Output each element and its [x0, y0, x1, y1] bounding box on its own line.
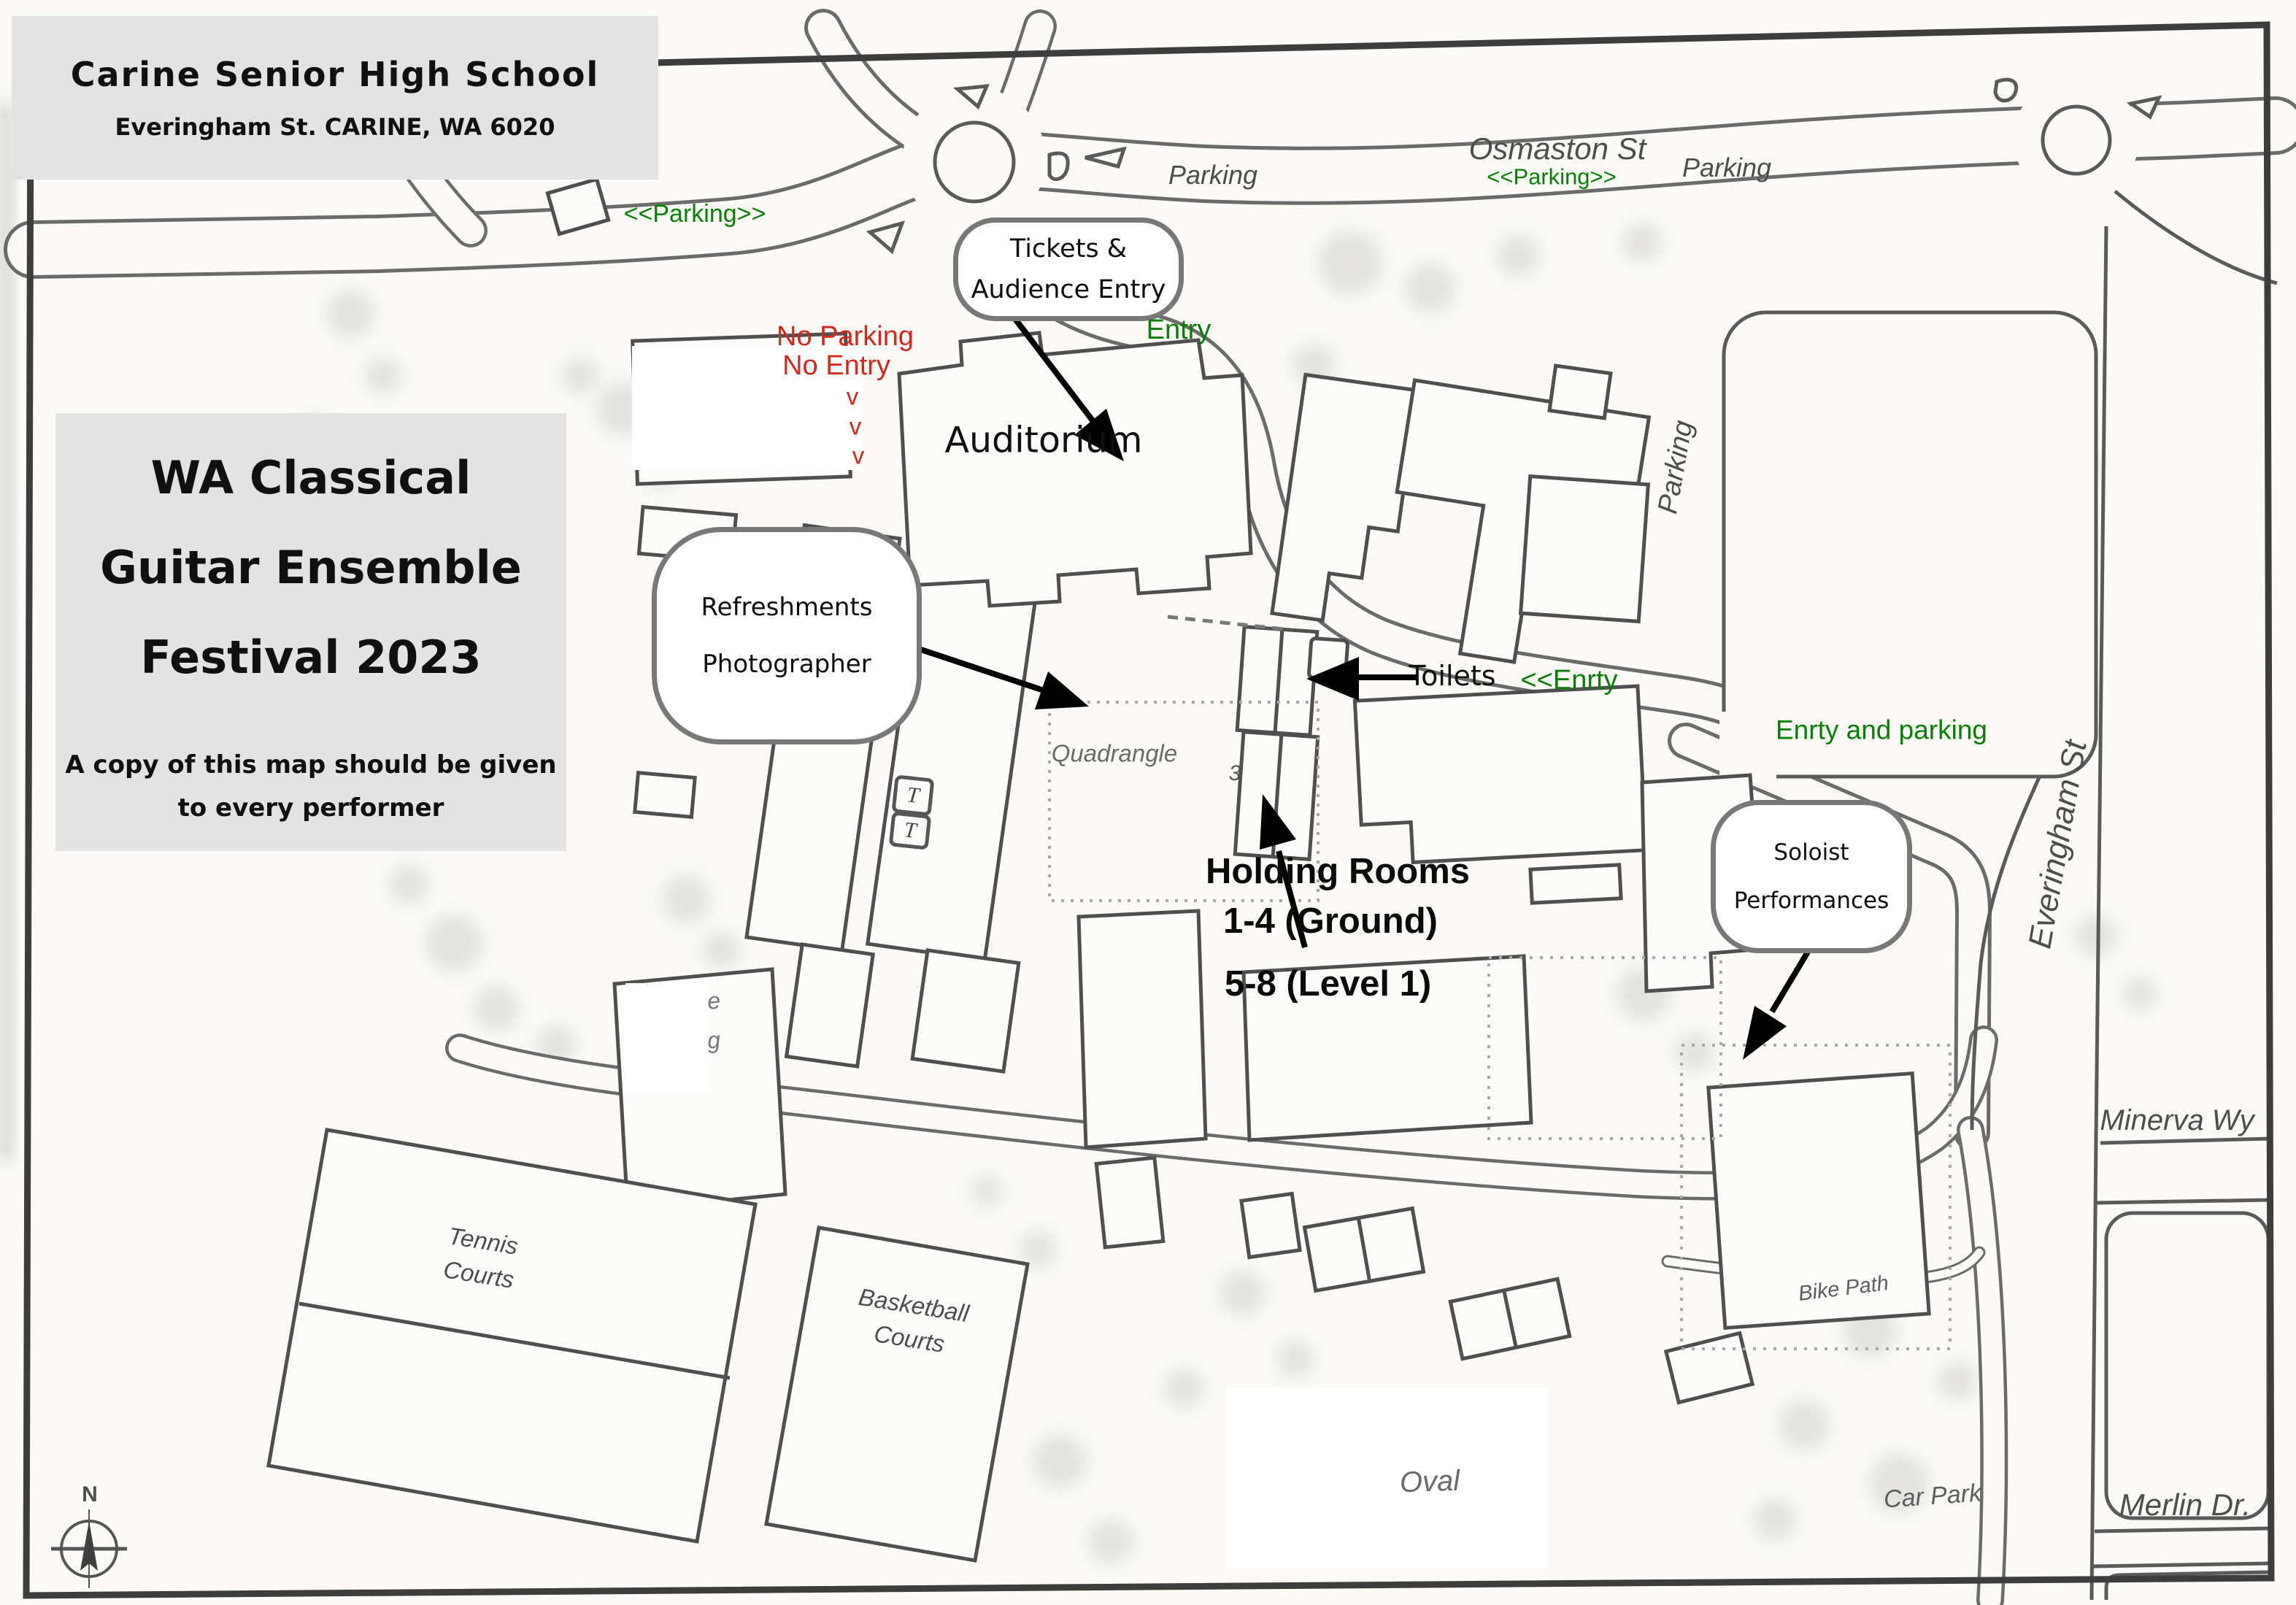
event-title-line2: Guitar Ensemble: [100, 523, 522, 613]
car-park-label: Car Park: [1883, 1480, 1982, 1512]
tickets-line1: Tickets &: [1010, 234, 1127, 263]
event-title-line1: WA Classical: [151, 434, 471, 523]
auditorium-label: Auditorium: [944, 423, 1142, 458]
red-chevron-3: v: [852, 444, 865, 468]
event-note-line2: to every performer: [178, 787, 444, 831]
campus-map: Carine Senior High School Everingham St.…: [0, 0, 2296, 1605]
buildings: [269, 179, 1929, 1560]
refreshments-line1: Refreshments: [701, 593, 872, 622]
school-name: Carine Senior High School: [71, 55, 599, 94]
red-chevron-1: v: [847, 385, 859, 409]
enrty-and-parking-label: Enrty and parking: [1776, 717, 1987, 744]
minerva-wy-label: Minerva Wy: [2100, 1106, 2254, 1135]
compass-north-label: N: [82, 1484, 98, 1506]
refreshments-line2: Photographer: [702, 650, 871, 679]
toilets-label: Toilets: [1409, 662, 1495, 690]
soloist-line1: Soloist: [1773, 839, 1849, 866]
parking-mid-label: Parking: [1168, 162, 1257, 188]
osmaston-st-label: Osmaston St: [1469, 134, 1646, 164]
parking-lot: [1719, 312, 2096, 785]
refreshments-callout: Refreshments Photographer: [652, 527, 922, 744]
oval-label: Oval: [1399, 1466, 1460, 1498]
parking-ne-label: Parking: [1682, 155, 1771, 181]
holding-rooms-line2: 1-4 (Ground): [1223, 901, 1438, 942]
arrow-soloist: [1743, 946, 1811, 1060]
toilet-t1: T: [906, 782, 920, 809]
holding-rooms-line3: 5-8 (Level 1): [1225, 963, 1431, 1004]
tickets-line2: Audience Entry: [971, 275, 1166, 304]
tickets-callout: Tickets & Audience Entry: [953, 218, 1184, 321]
merlin-dr-label: Merlin Dr.: [2119, 1490, 2251, 1520]
no-entry-label: No Entry: [782, 352, 890, 380]
parking-left-label: <<Parking>>: [624, 201, 766, 226]
holding-rooms-line1: Holding Rooms: [1206, 851, 1470, 892]
title-block: Carine Senior High School Everingham St.…: [12, 16, 658, 180]
toilet-t2: T: [903, 817, 917, 844]
no-parking-label: No Parking: [777, 323, 914, 350]
room-3-label: 3: [1229, 763, 1241, 785]
compass-rose-icon: [51, 1509, 127, 1588]
school-address: Everingham St. CARINE, WA 6020: [115, 113, 555, 141]
toilet-box-2: T: [889, 811, 932, 850]
covered-label-fragment-e: e: [706, 988, 722, 1012]
toilet-box-1: T: [891, 774, 934, 816]
enrty-label: <<Enrty: [1520, 666, 1617, 694]
red-chevron-2: v: [850, 415, 862, 439]
parking-osmaston-label: <<Parking>>: [1487, 166, 1617, 188]
entry-label: Entry: [1147, 316, 1211, 344]
soloist-line2: Performances: [1734, 888, 1889, 914]
event-note-line1: A copy of this map should be given: [65, 744, 556, 788]
covered-label-fragment-g: g: [706, 1028, 722, 1052]
soloist-callout: Soloist Performances: [1711, 800, 1912, 953]
event-title-line3: Festival 2023: [140, 613, 481, 703]
quadrangle-label: Quadrangle: [1052, 742, 1177, 766]
event-info-panel: WA Classical Guitar Ensemble Festival 20…: [55, 413, 566, 851]
